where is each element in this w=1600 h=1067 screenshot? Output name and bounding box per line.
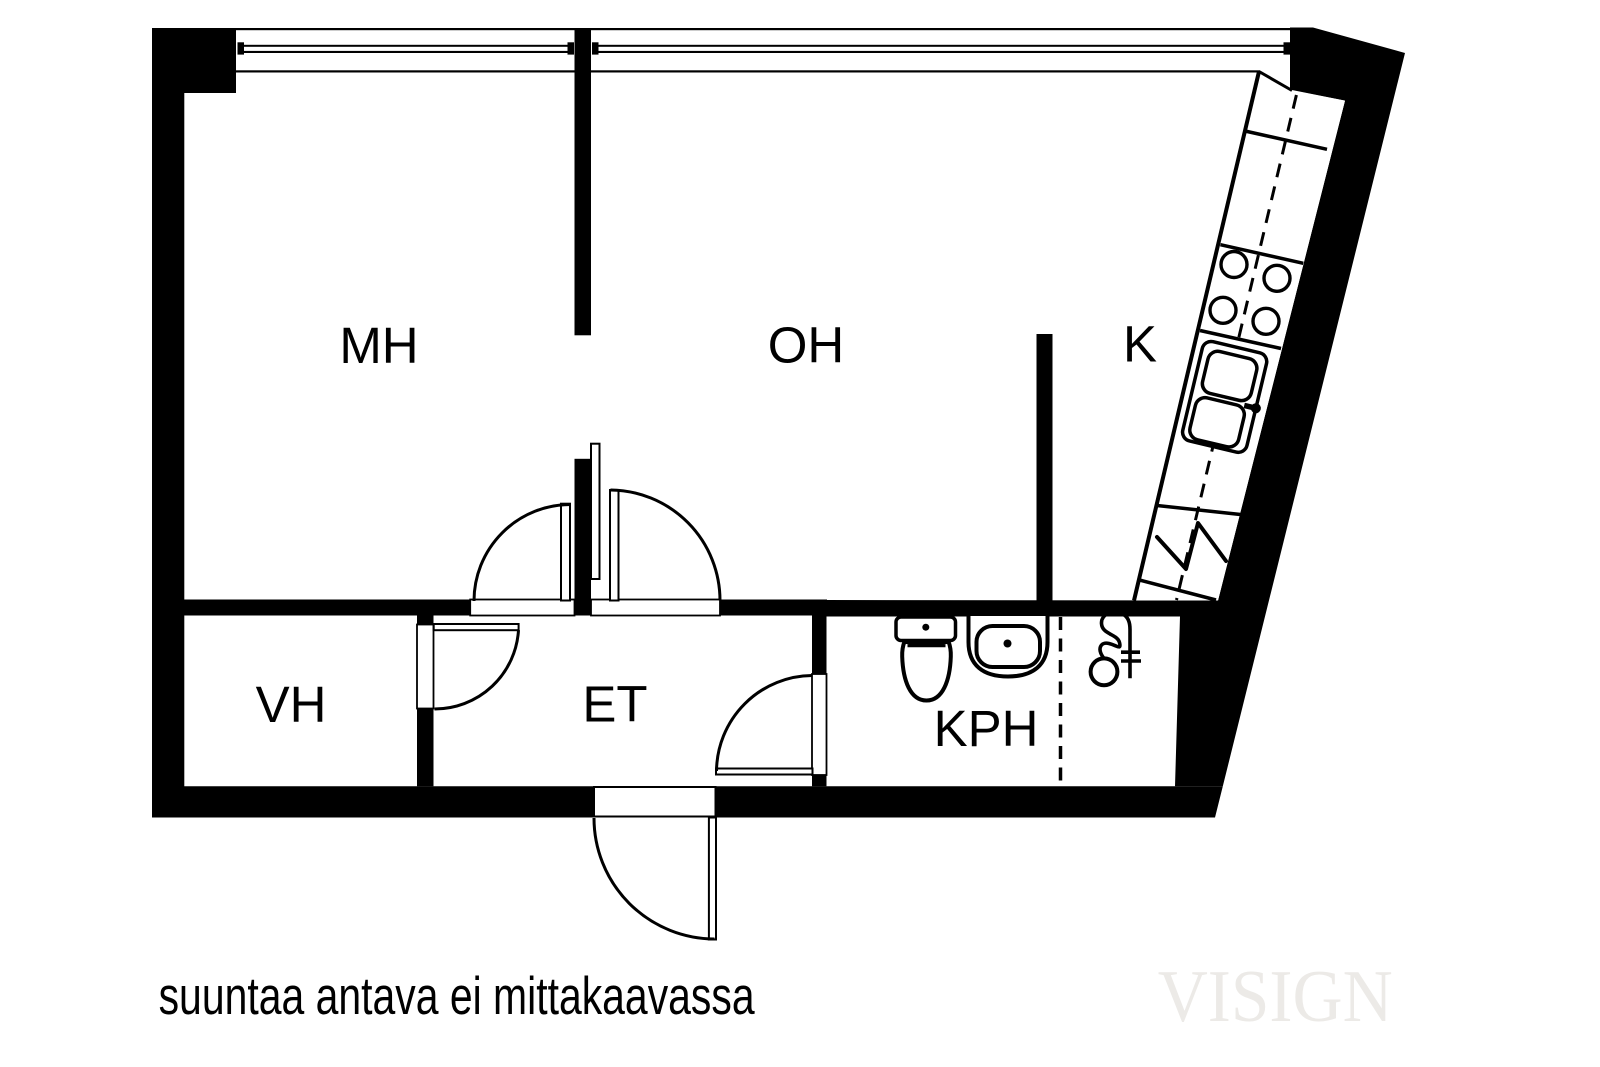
svg-text:K: K xyxy=(1123,316,1157,373)
svg-text:KPH: KPH xyxy=(934,700,1039,757)
svg-text:VISIGN: VISIGN xyxy=(1158,956,1393,1038)
svg-text:OH: OH xyxy=(768,317,845,374)
svg-text:suuntaa antava ei mittakaavass: suuntaa antava ei mittakaavassa xyxy=(159,967,755,1026)
svg-text:MH: MH xyxy=(339,317,418,374)
svg-text:VH: VH xyxy=(256,676,327,733)
svg-text:ET: ET xyxy=(582,676,647,733)
